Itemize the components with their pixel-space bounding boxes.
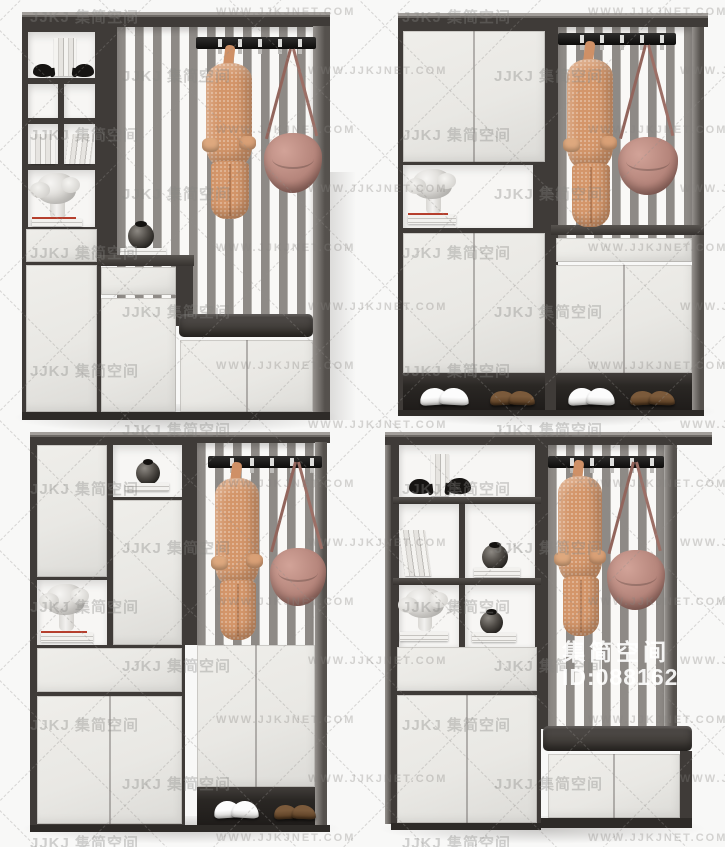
bag-body [607, 550, 665, 610]
counter-top [98, 255, 194, 266]
elephant-figurine [447, 478, 471, 494]
bag-body [618, 137, 678, 195]
cardigan-hem [563, 576, 599, 636]
hanging-bag [605, 460, 667, 614]
product-render-image: JJKJ 集简空间WWW.JJKJNET.COMJJKJ 集简空间WWW.JJK… [0, 0, 725, 847]
upper-cabinet-doors [403, 31, 545, 162]
cardigan-body [567, 59, 613, 169]
cardigan-hem [211, 161, 249, 219]
top-panel [385, 432, 712, 445]
white-sneakers [214, 796, 260, 820]
cabinet-doors [556, 265, 692, 373]
hanging-bag [616, 43, 680, 199]
cabinet-set-bottom-right [385, 432, 712, 832]
drawer-front [26, 229, 97, 262]
brown-shoes [490, 387, 536, 407]
brown-shoes [274, 801, 316, 821]
hanging-bag [268, 460, 328, 610]
site-id-brand: 集简空间 [562, 640, 678, 665]
drawer-front [397, 647, 537, 691]
divider-panel [101, 26, 117, 266]
base-strip [391, 823, 541, 830]
cabinet-door [101, 298, 176, 412]
cabinet-doors [37, 696, 182, 824]
hanging-cardigan [562, 41, 620, 231]
drawer-front [556, 238, 692, 262]
bench-cushion [543, 726, 692, 751]
right-side-panel [692, 27, 704, 411]
cardigan-hem [572, 163, 610, 227]
elephant-figurine [74, 64, 94, 77]
cabinet-door [37, 445, 107, 577]
cabinet-door [113, 500, 182, 645]
bench-side-panel [680, 751, 692, 823]
shelf-cell [64, 84, 95, 118]
books [32, 219, 82, 226]
divider-panel [185, 443, 197, 645]
shelf-board [393, 578, 541, 585]
white-sneakers [420, 383, 470, 407]
books [400, 632, 448, 641]
elephant-figurine [409, 479, 431, 494]
cardigan-body [206, 63, 252, 167]
site-id-number: ID:088162 [562, 665, 678, 690]
shelf-cell [28, 84, 58, 118]
flower-bouquet [36, 173, 76, 204]
cardigan-body [215, 478, 259, 586]
bench-base [541, 818, 692, 828]
hanging-cardigan [200, 45, 262, 221]
round-vase [482, 544, 508, 570]
top-panel [22, 12, 330, 27]
bench-cabinet-doors [548, 754, 680, 818]
books [41, 633, 93, 642]
hanging-bag [262, 47, 324, 197]
cabinet-set-bottom-left [30, 432, 330, 832]
base-strip [398, 410, 704, 416]
bag-body [270, 548, 326, 606]
lower-cabinet-doors [403, 233, 545, 373]
books [408, 215, 456, 224]
cardigan-hem [220, 580, 256, 640]
bench-cabinet-doors [180, 340, 313, 412]
cabinet-doors [397, 695, 537, 823]
cabinet-door [26, 265, 97, 412]
round-vase [480, 611, 503, 634]
side-shadow [330, 172, 356, 420]
books [125, 483, 169, 491]
shelf-board [393, 497, 541, 504]
drawer-front [37, 648, 182, 692]
base-strip [30, 825, 330, 832]
cardigan-body [558, 476, 602, 582]
round-vase [136, 461, 160, 485]
books [472, 633, 516, 642]
site-id-watermark: 集简空间 ID:088162 [562, 640, 678, 690]
flower-bouquet [404, 588, 444, 618]
cabinet-set-top-right [398, 13, 708, 415]
bag-body [264, 133, 322, 193]
divider-panel [541, 445, 548, 729]
hanging-cardigan [555, 460, 607, 640]
flower-bouquet [412, 169, 452, 199]
divider-panel [551, 27, 558, 237]
elephant-figurine [33, 64, 53, 77]
books [31, 134, 55, 164]
hanging-cardigan [211, 462, 265, 644]
top-panel [30, 432, 330, 443]
cabinet-doors [197, 645, 315, 787]
round-vase [128, 223, 154, 249]
books [474, 568, 520, 577]
top-panel [398, 13, 708, 27]
vase [59, 613, 74, 631]
books [65, 134, 94, 164]
cabinet-set-top-left [22, 12, 330, 420]
brown-shoes [630, 387, 676, 407]
flower-bouquet [45, 584, 85, 615]
base-strip [22, 412, 330, 420]
drawer-front [101, 267, 176, 295]
bench-cushion [179, 314, 313, 337]
white-sneakers [568, 383, 616, 407]
